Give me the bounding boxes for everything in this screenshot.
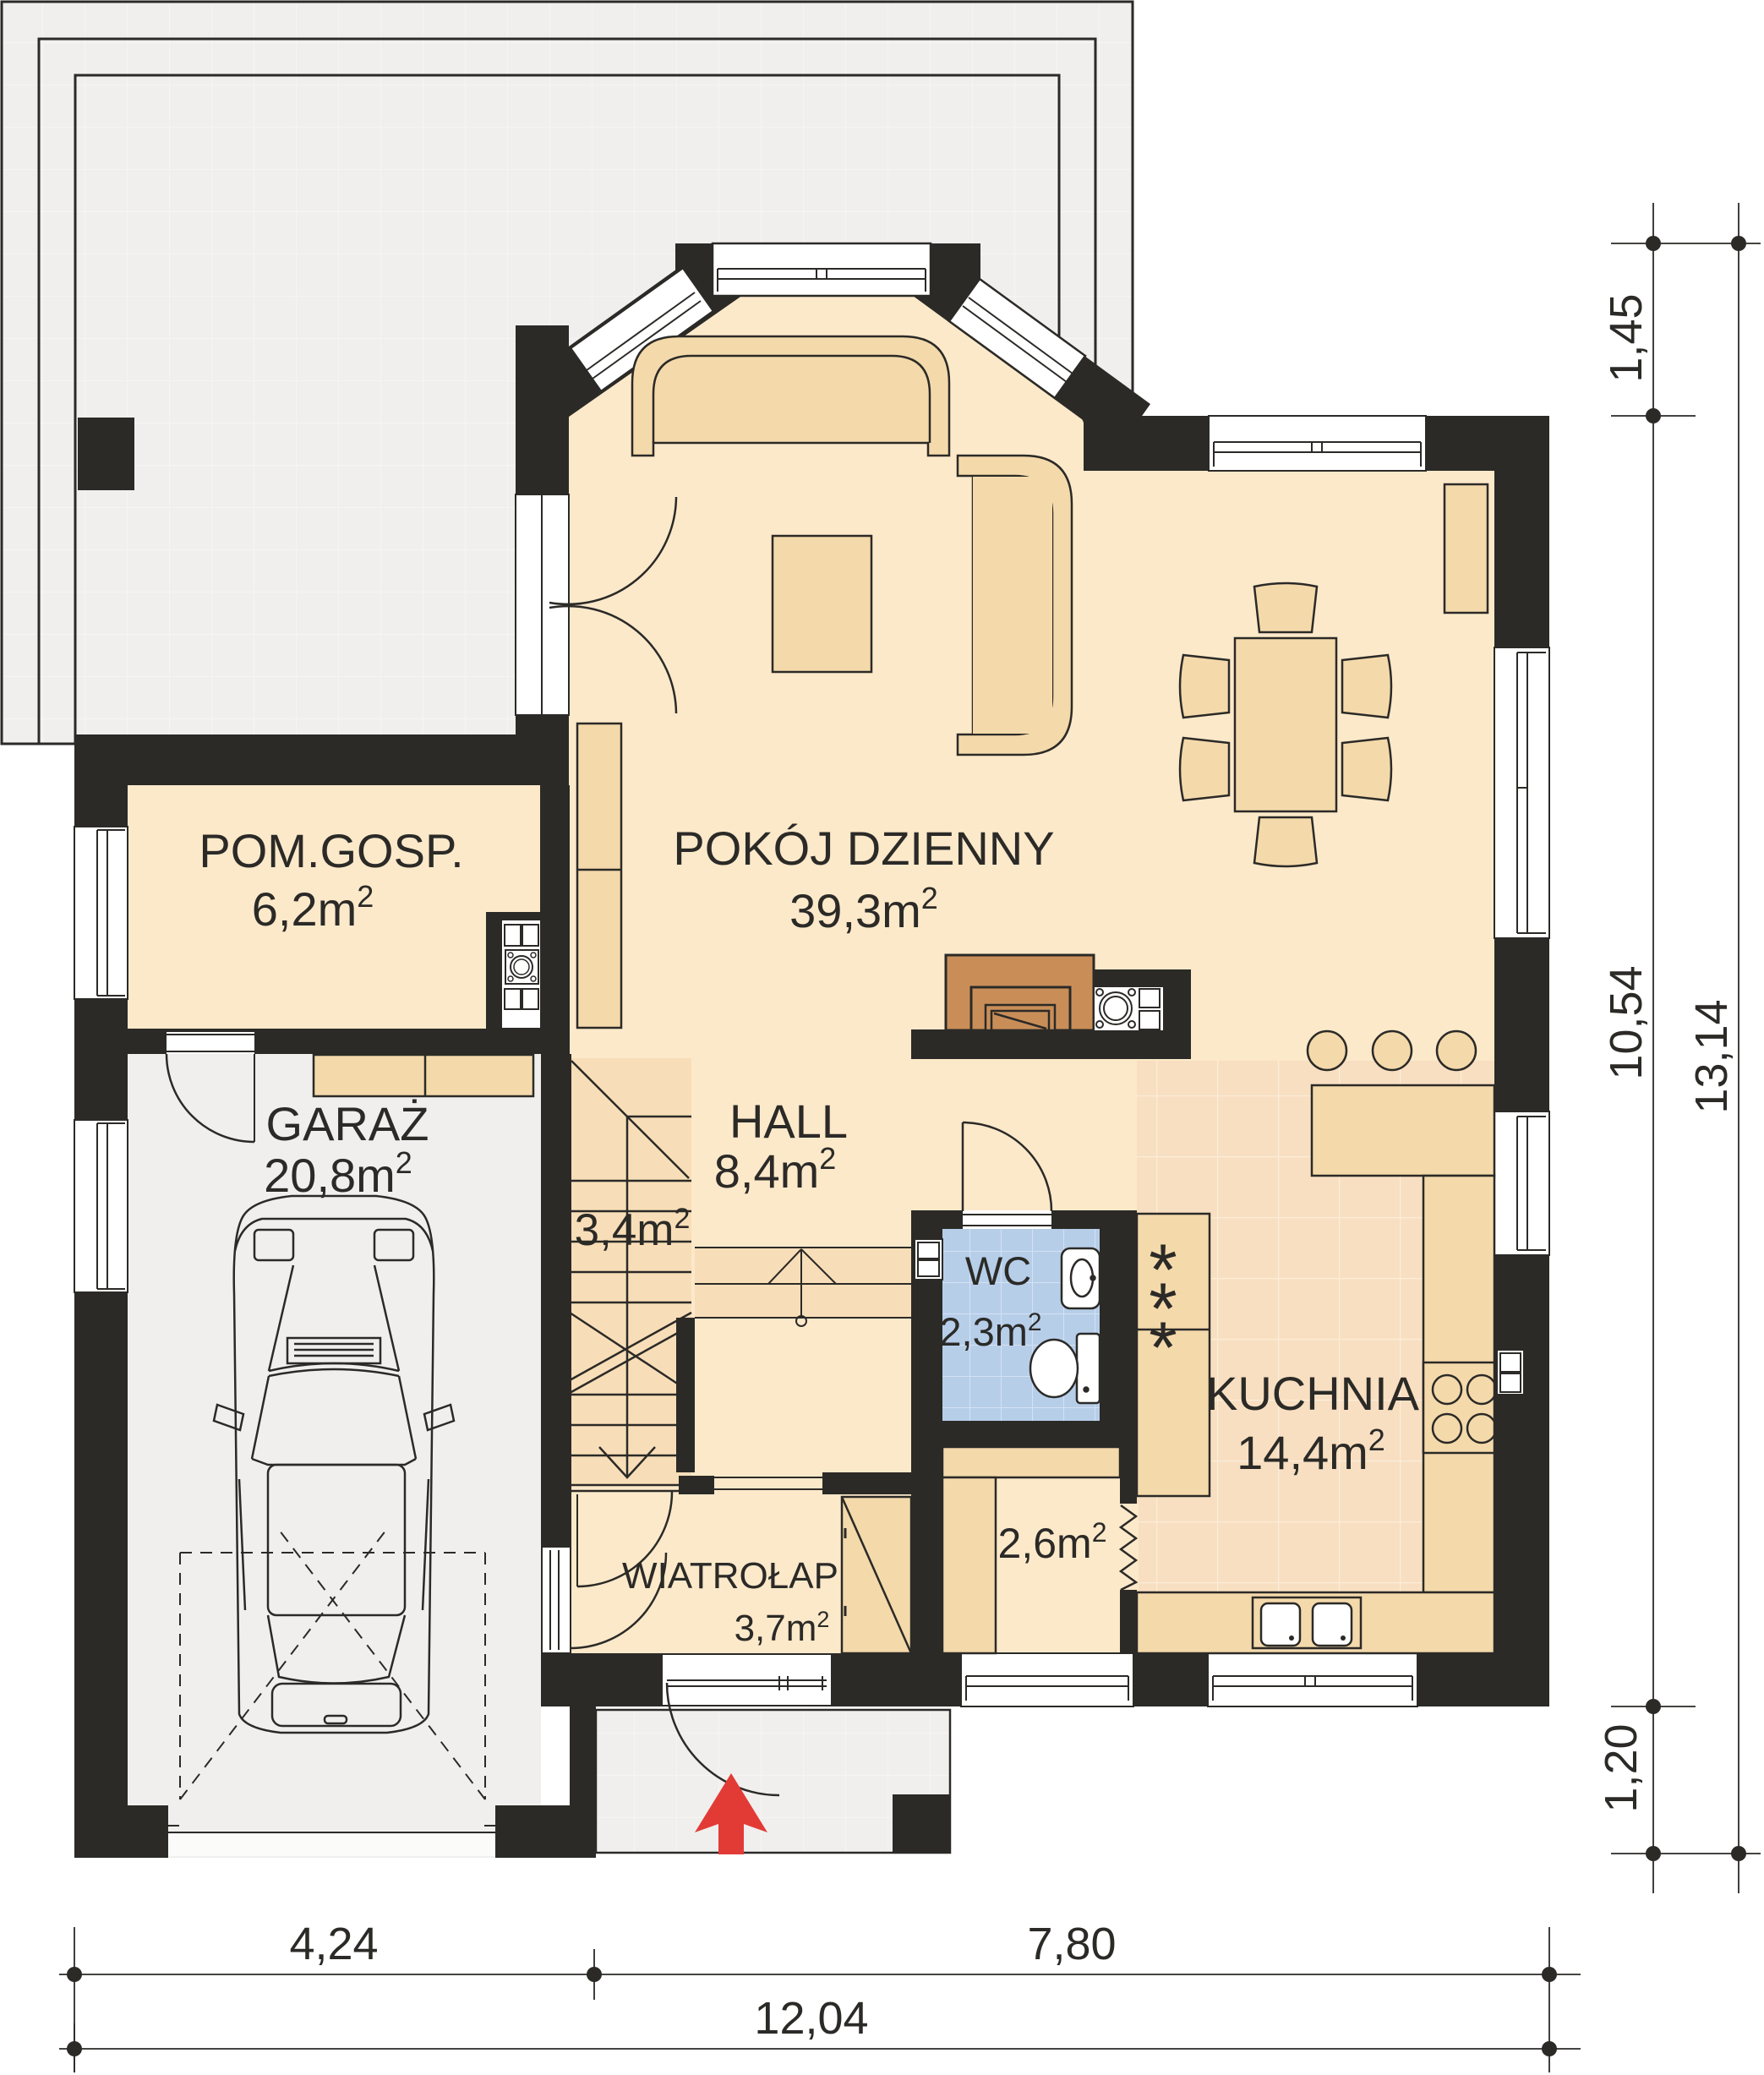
- svg-text:7,80: 7,80: [1027, 1919, 1116, 1969]
- svg-text:WIATROŁAP: WIATROŁAP: [622, 1555, 838, 1597]
- svg-text:6,2m2: 6,2m2: [252, 879, 374, 936]
- svg-text:WC: WC: [965, 1248, 1031, 1293]
- svg-text:KUCHNIA: KUCHNIA: [1206, 1367, 1420, 1420]
- svg-text:12,04: 12,04: [754, 1993, 868, 2044]
- svg-text:13,14: 13,14: [1686, 999, 1737, 1113]
- svg-text:3,7m2: 3,7m2: [735, 1607, 830, 1649]
- svg-text:1,45: 1,45: [1601, 293, 1652, 382]
- svg-text:4,24: 4,24: [289, 1919, 378, 1969]
- svg-text:2,3m2: 2,3m2: [939, 1308, 1041, 1354]
- svg-text:POM.GOSP.: POM.GOSP.: [199, 824, 463, 877]
- svg-text:3,4m2: 3,4m2: [575, 1203, 691, 1255]
- svg-text:10,54: 10,54: [1601, 965, 1652, 1079]
- svg-text:2,6m2: 2,6m2: [998, 1517, 1107, 1567]
- svg-text:14,4m2: 14,4m2: [1237, 1422, 1385, 1479]
- svg-text:GARAŻ: GARAŻ: [266, 1097, 429, 1150]
- svg-text:20,8m2: 20,8m2: [264, 1145, 412, 1202]
- svg-text:8,4m2: 8,4m2: [714, 1141, 837, 1198]
- svg-text:*: *: [1149, 1308, 1177, 1389]
- svg-text:POKÓJ DZIENNY: POKÓJ DZIENNY: [673, 822, 1054, 875]
- svg-text:39,3m2: 39,3m2: [789, 881, 938, 937]
- svg-text:HALL: HALL: [729, 1095, 848, 1148]
- svg-text:1,20: 1,20: [1596, 1723, 1647, 1812]
